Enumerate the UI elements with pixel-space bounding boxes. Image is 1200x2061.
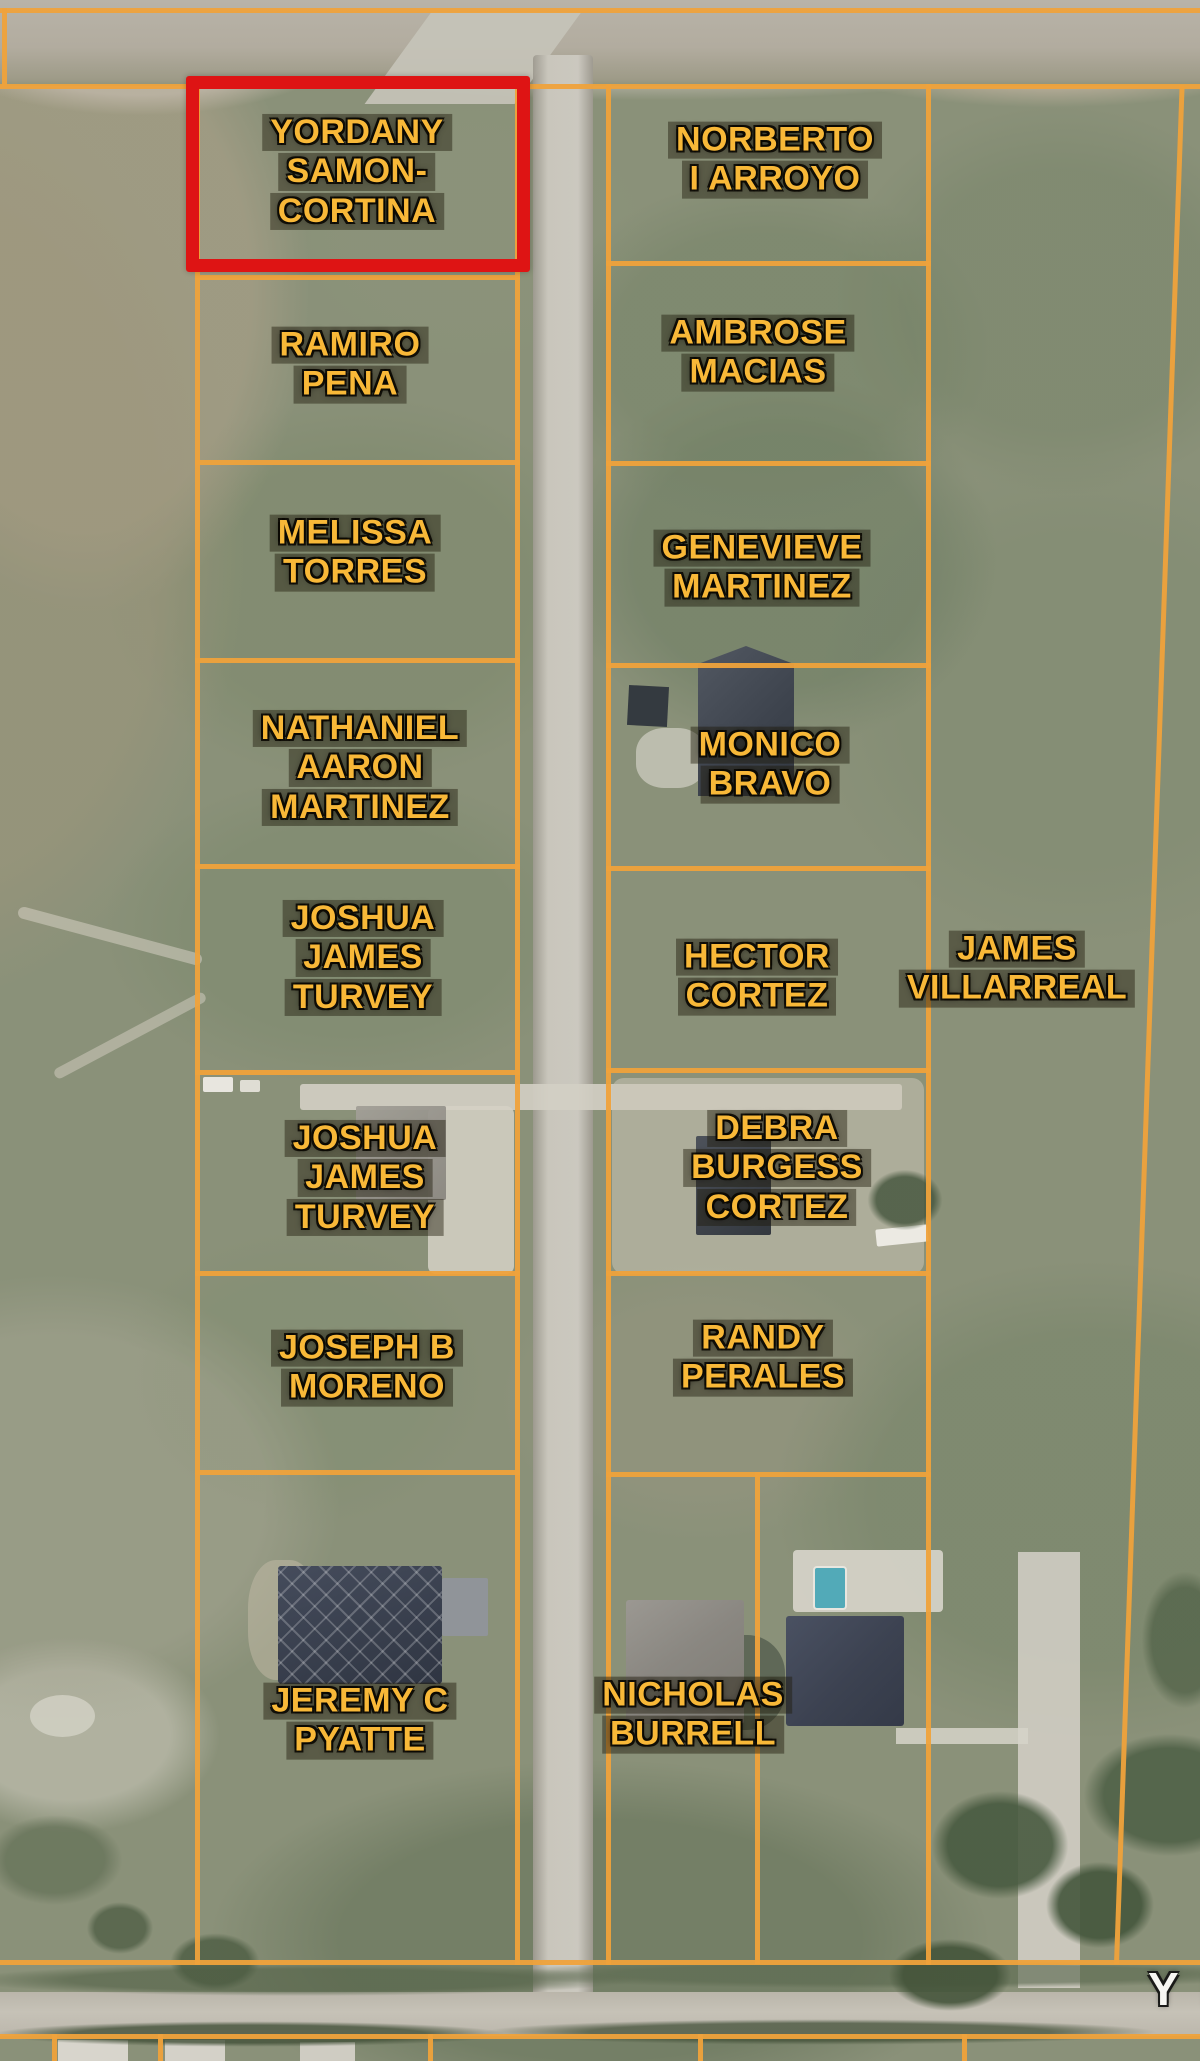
- rv-vehicle: [203, 1077, 233, 1092]
- parcel-line: [606, 261, 931, 266]
- concrete-driveway: [1018, 1552, 1080, 1988]
- rv-vehicle: [240, 1080, 260, 1092]
- parcel-line: [195, 658, 520, 663]
- parcel-line: [606, 461, 931, 466]
- parcel-line: [195, 275, 520, 280]
- parcel-label-line: CORTINA: [270, 193, 444, 230]
- parcel-line: [606, 663, 931, 668]
- aerial-parcel-map: YORDANYSAMON-CORTINA RAMIROPENA MELISSAT…: [0, 0, 1200, 2061]
- parcel-line: [606, 866, 931, 871]
- parcel-label-line: HECTOR: [676, 939, 838, 976]
- parcel-line: [428, 2034, 433, 2061]
- parcel-line: [195, 1070, 520, 1075]
- driveway-patch: [58, 2040, 128, 2061]
- parcel-line: [0, 2034, 1200, 2039]
- parcel-line: [606, 1271, 931, 1276]
- parcel-label-line: PYATTE: [286, 1722, 433, 1759]
- shed: [627, 685, 669, 727]
- parcel-label-line: MELISSA: [270, 515, 441, 552]
- parcel-label-line: YORDANY: [262, 114, 452, 151]
- parcel-line: [195, 460, 520, 465]
- parcel-line: [962, 2034, 967, 2061]
- parcel-line: [0, 1960, 1200, 1965]
- road-name-label: Y R: [1148, 1962, 1200, 2016]
- parcel-label-line: PERALES: [673, 1359, 853, 1396]
- parcel-label-debra-burgess-cortez: DEBRABURGESSCORTEZ: [683, 1110, 871, 1226]
- walkway: [896, 1728, 1028, 1744]
- parcel-label-line: MARTINEZ: [664, 569, 860, 606]
- parcel-line: [606, 1472, 931, 1477]
- swimming-pool: [813, 1566, 847, 1610]
- parcel-label-melissa-torres: MELISSATORRES: [270, 515, 441, 592]
- parcel-label-line: VILLARREAL: [899, 970, 1135, 1007]
- parcel-label-line: BURRELL: [602, 1716, 784, 1753]
- parcel-label-line: RANDY: [693, 1320, 832, 1357]
- parcel-line: [195, 1470, 520, 1475]
- parcel-label-joshua-james-turvey-2: JOSHUAJAMESTURVEY: [285, 1120, 446, 1236]
- parcel-label-line: GENEVIEVE: [653, 530, 870, 567]
- parcel-label-nicholas-burrell: NICHOLASBURRELL: [594, 1677, 792, 1754]
- parcel-label-line: TURVEY: [285, 979, 441, 1016]
- parcel-label-line: AARON: [288, 749, 431, 786]
- parcel-label-hector-cortez: HECTORCORTEZ: [676, 939, 838, 1016]
- parcel-label-line: AMBROSE: [661, 315, 854, 352]
- parcel-label-joshua-james-turvey-1: JOSHUAJAMESTURVEY: [283, 900, 444, 1016]
- parcel-label-line: I ARROYO: [682, 161, 869, 198]
- parcel-label-line: BURGESS: [683, 1149, 871, 1186]
- parcel-label-line: MORENO: [281, 1369, 453, 1406]
- parcel-label-line: PENA: [294, 366, 406, 403]
- parcel-label-line: MACIAS: [681, 354, 834, 391]
- house-nicholas-burrell: [786, 1616, 904, 1726]
- parcel-label-line: NORBERTO: [668, 122, 882, 159]
- parcel-line: [0, 84, 1200, 89]
- parcel-label-line: JAMES: [297, 1159, 433, 1196]
- parcel-label-line: BRAVO: [701, 766, 840, 803]
- parcel-line: [0, 8, 1200, 13]
- parcel-label-line: JOSHUA: [285, 1120, 446, 1157]
- parcel-label-line: NATHANIEL: [253, 710, 467, 747]
- driveway-patch: [300, 2042, 355, 2061]
- parcel-line: [52, 2034, 57, 2061]
- parcel-label-line: JEREMY C: [263, 1683, 456, 1720]
- house-jeremy-pyatte: [278, 1566, 442, 1684]
- parcel-line: [195, 84, 200, 1965]
- parcel-label-yordany-samon-cortina: YORDANYSAMON-CORTINA: [262, 114, 452, 230]
- parcel-label-ambrose-macias: AMBROSEMACIAS: [661, 315, 854, 392]
- parcel-label-line: TORRES: [275, 554, 435, 591]
- vertical-road: [533, 55, 593, 2000]
- dirt-patch: [30, 1695, 95, 1737]
- parcel-label-line: JOSEPH B: [271, 1330, 463, 1367]
- parcel-line: [606, 1068, 931, 1073]
- parcel-line: [195, 1271, 520, 1276]
- parcel-line: [2, 8, 7, 86]
- parcel-label-line: CORTEZ: [698, 1189, 857, 1226]
- parcel-label-line: NICHOLAS: [594, 1677, 792, 1714]
- parcel-label-line: MARTINEZ: [262, 789, 458, 826]
- garage: [442, 1578, 488, 1636]
- parcel-label-nathaniel-aaron-martinez: NATHANIELAARONMARTINEZ: [253, 710, 467, 826]
- parcel-label-line: SAMON-: [279, 153, 436, 190]
- parcel-label-line: JOSHUA: [283, 900, 444, 937]
- parcel-line: [158, 2034, 163, 2061]
- parcel-label-norberto-i-arroyo: NORBERTOI ARROYO: [668, 122, 882, 199]
- parcel-label-genevieve-martinez: GENEVIEVEMARTINEZ: [653, 530, 870, 607]
- parcel-label-line: RAMIRO: [272, 327, 429, 364]
- parcel-label-line: DEBRA: [707, 1110, 846, 1147]
- parcel-label-james-villarreal: JAMESVILLARREAL: [899, 931, 1135, 1008]
- parcel-label-line: MONICO: [691, 727, 850, 764]
- parcel-label-joseph-b-moreno: JOSEPH BMORENO: [271, 1330, 463, 1407]
- parcel-line: [195, 864, 520, 869]
- parcel-label-randy-perales: RANDYPERALES: [673, 1320, 853, 1397]
- parcel-label-ramiro-pena: RAMIROPENA: [272, 327, 429, 404]
- parcel-label-line: JAMES: [949, 931, 1085, 968]
- parcel-line: [515, 84, 520, 1965]
- parcel-label-line: TURVEY: [287, 1199, 443, 1236]
- parcel-label-jeremy-c-pyatte: JEREMY CPYATTE: [263, 1683, 456, 1760]
- parcel-line: [926, 84, 931, 1965]
- parcel-label-line: CORTEZ: [678, 978, 837, 1015]
- parcel-line: [698, 2034, 703, 2061]
- bottom-road: [0, 1992, 1200, 2036]
- parcel-label-line: JAMES: [295, 939, 431, 976]
- driveway-patch: [165, 2040, 225, 2061]
- parcel-label-monico-bravo: MONICOBRAVO: [691, 727, 850, 804]
